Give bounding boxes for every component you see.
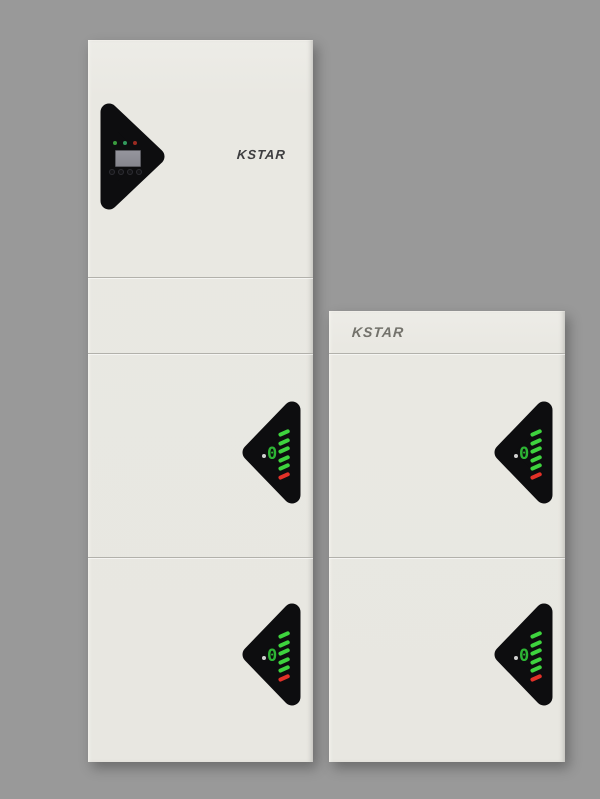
- battery-indicator-panel: 0: [493, 399, 553, 506]
- battery-bar-icon: [278, 648, 290, 656]
- battery-module: 0: [329, 353, 565, 557]
- battery-module: 0: [88, 353, 313, 557]
- inverter-display-panel: [100, 100, 166, 213]
- battery-bar-icon: [530, 446, 542, 454]
- tower-top-cap: KSTAR: [329, 311, 565, 353]
- battery-bar-icon: [278, 656, 290, 664]
- battery-indicator-panel: 0: [493, 601, 553, 708]
- battery-bar-icon: [530, 648, 542, 656]
- blank-spacer-module: [88, 277, 313, 353]
- inverter-led-row: [113, 141, 137, 145]
- battery-status-dot-icon: [262, 454, 266, 458]
- battery-bar-icon: [278, 446, 290, 454]
- battery-bar-icon: [278, 665, 290, 673]
- battery-bar-icon: [278, 639, 290, 647]
- battery-bar-icon: [530, 639, 542, 647]
- battery-bar-icon: [278, 454, 290, 462]
- inverter-unit: KSTAR: [88, 40, 313, 277]
- brand-logo: KSTAR: [237, 147, 287, 162]
- battery-bar-icon: [530, 665, 542, 673]
- battery-bar-icon: [530, 656, 542, 664]
- panel-button-icon: [118, 169, 124, 175]
- battery-module: 0: [329, 557, 565, 762]
- battery-bar-icon: [530, 437, 542, 445]
- inverter-button-row: [109, 169, 142, 175]
- panel-button-icon: [127, 169, 133, 175]
- brand-logo: KSTAR: [351, 324, 404, 340]
- battery-bar-icon: [530, 463, 542, 471]
- battery-status-dot-icon: [262, 656, 266, 660]
- battery-soc-digit: 0: [267, 444, 277, 464]
- battery-level-bars: [278, 633, 290, 679]
- battery-soc-digit: 0: [519, 444, 529, 464]
- lcd-screen: [115, 150, 141, 167]
- left-energy-storage-tower: KSTAR 0 0: [88, 40, 313, 762]
- battery-soc-digit: 0: [519, 646, 529, 666]
- battery-indicator-panel: 0: [241, 399, 301, 506]
- battery-level-bars: [530, 431, 542, 477]
- led-green-1-icon: [113, 141, 117, 145]
- battery-level-bars: [278, 431, 290, 477]
- battery-module: 0: [88, 557, 313, 762]
- panel-button-icon: [109, 169, 115, 175]
- product-photo-scene: KSTAR 0 0: [0, 0, 600, 799]
- battery-status-dot-icon: [514, 454, 518, 458]
- battery-bar-icon: [278, 437, 290, 445]
- battery-indicator-panel: 0: [241, 601, 301, 708]
- battery-status-dot-icon: [514, 656, 518, 660]
- battery-soc-digit: 0: [267, 646, 277, 666]
- panel-button-icon: [136, 169, 142, 175]
- battery-bar-icon: [278, 463, 290, 471]
- led-red-icon: [133, 141, 137, 145]
- battery-level-bars: [530, 633, 542, 679]
- right-battery-tower: KSTAR 0 0: [329, 311, 565, 762]
- led-green-2-icon: [123, 141, 127, 145]
- battery-bar-icon: [530, 454, 542, 462]
